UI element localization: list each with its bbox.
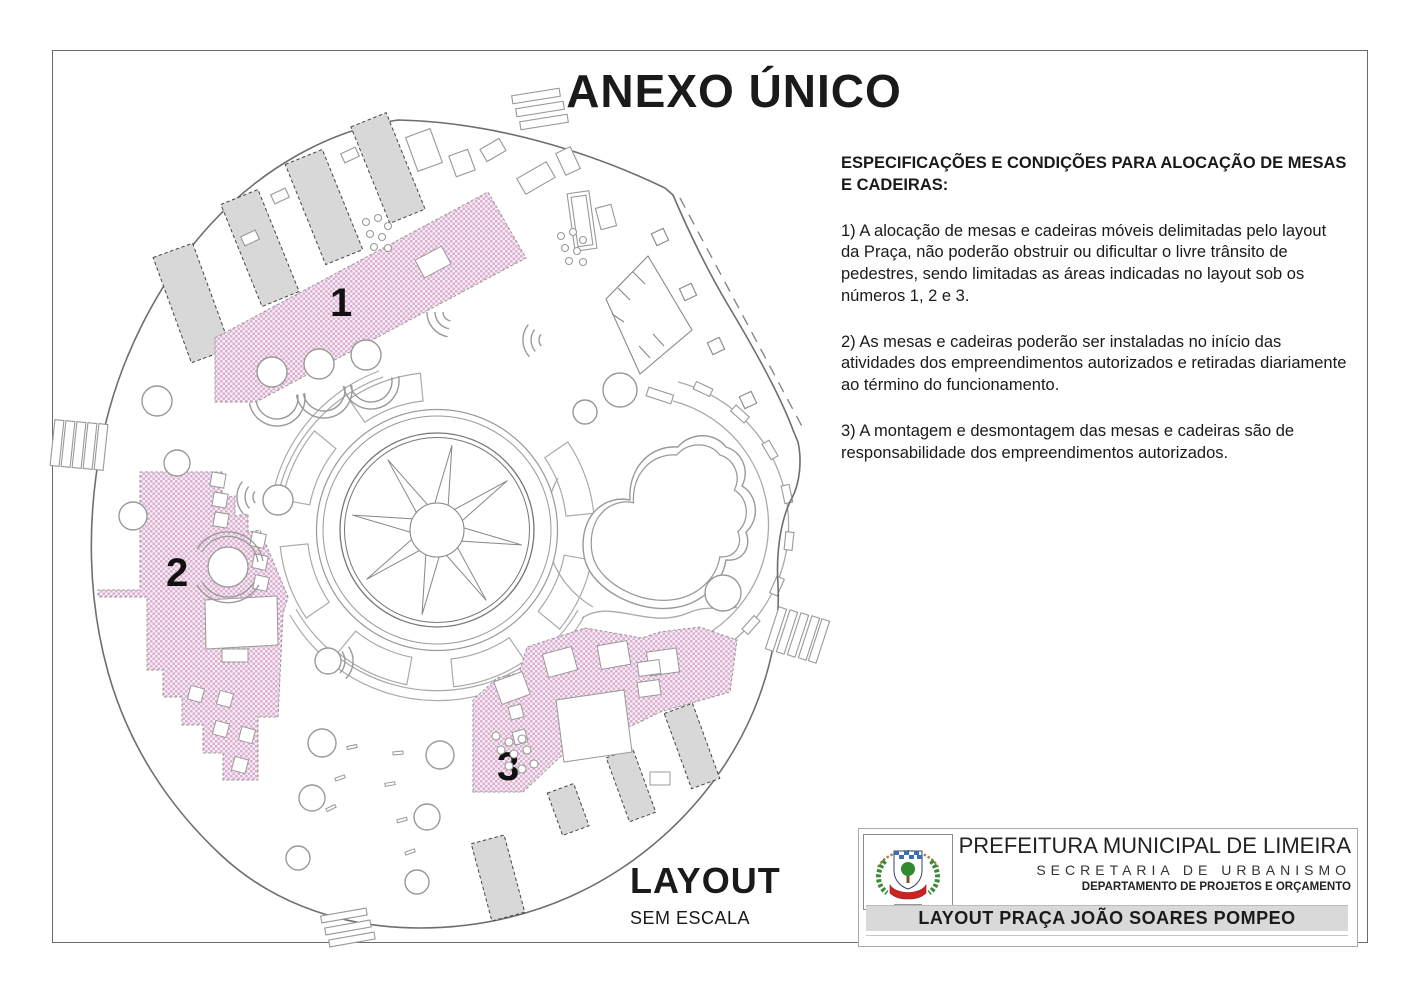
caption-title: LAYOUT [630,860,781,902]
area-1-label: 1 [330,281,352,325]
site-plan-drawing: 1 [0,0,860,995]
specs-item-1: 1) A alocação de mesas e cadeiras móveis… [841,221,1349,308]
caption-scale: SEM ESCALA [630,908,781,929]
org-name: PREFEITURA MUNICIPAL DE LIMEIRA [959,833,1351,859]
department-name: DEPARTAMENTO DE PROJETOS E ORÇAMENTO [959,881,1351,893]
secretariat-name: SECRETARIA DE URBANISMO [959,862,1351,878]
central-plaza [317,410,558,651]
title-block: PREFEITURA MUNICIPAL DE LIMEIRA SECRETAR… [858,828,1358,947]
specs-item-3: 3) A montagem e desmontagem das mesas e … [841,421,1349,465]
specs-item-2: 2) As mesas e cadeiras poderão ser insta… [841,332,1349,397]
area-2-label: 2 [166,551,188,595]
plan-caption: LAYOUT SEM ESCALA [630,860,781,929]
drawing-title-bar: LAYOUT PRAÇA JOÃO SOARES POMPEO [866,905,1348,931]
title-block-rule [866,935,1348,936]
scatter-ticks [326,744,415,855]
city-crest-icon [863,834,953,910]
drawing-sheet: ANEXO ÚNICO [0,0,1408,995]
specifications-block: ESPECIFICAÇÕES E CONDIÇÕES PARA ALOCAÇÃO… [841,153,1349,488]
specs-heading: ESPECIFICAÇÕES E CONDIÇÕES PARA ALOCAÇÃO… [841,153,1349,197]
